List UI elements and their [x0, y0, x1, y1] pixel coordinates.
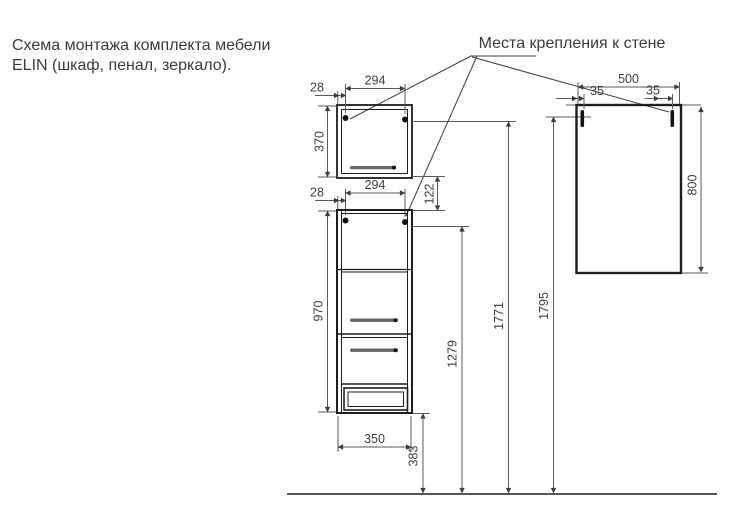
dim-label: 370 [313, 131, 327, 152]
mount-pin-marker [671, 110, 675, 127]
dim-wall-cabinet-edge-offset: 28 [310, 81, 346, 105]
dim-label: 1279 [446, 340, 460, 368]
scheme-title: Схема монтажа комплекта мебели ELIN (шка… [12, 37, 270, 74]
dim-label: 294 [365, 178, 386, 192]
door-handle-end [394, 318, 398, 322]
callout-leader-tall-cabinet [406, 56, 477, 216]
callout-leader-mirror [472, 57, 669, 112]
mount-pin-marker [581, 110, 585, 127]
dim-wall-cabinet-mount-spacing: 294 [346, 74, 406, 115]
dim-tall-cabinet-floor-offset: 383 [407, 414, 431, 494]
dim-between-mount-spacing: 294 [346, 178, 406, 217]
dim-mount-height-tall-cabinet: 1279 [413, 227, 469, 494]
dim-label: 500 [618, 72, 639, 86]
dim-mount-height-mirror: 1795 [537, 117, 591, 493]
tall-cabinet-drawing [337, 210, 412, 413]
drawer-handle-end [394, 348, 398, 352]
mounting-scheme-drawing: Схема монтажа комплекта мебели ELIN (шка… [0, 0, 738, 509]
mount-point-marker [402, 219, 408, 225]
dim-label: 35 [646, 84, 660, 98]
scheme-title-line2: ELIN (шкаф, пенал, зеркало). [12, 57, 231, 74]
dim-label: 350 [364, 432, 385, 446]
dim-label: 122 [423, 184, 437, 205]
dim-label: 383 [407, 446, 421, 467]
mounting-scheme-page: Схема монтажа комплекта мебели ELIN (шка… [0, 0, 738, 509]
mount-point-marker [402, 117, 408, 123]
dim-tall-cabinet-height: 970 [312, 211, 337, 412]
dim-label: 28 [310, 81, 324, 95]
drawer-handle [350, 349, 398, 352]
dim-label: 970 [312, 301, 326, 322]
dim-label: 28 [310, 186, 324, 200]
dim-label: 294 [365, 74, 386, 88]
wall-mount-callout-label: Места крепления к стене [479, 35, 666, 52]
mount-point-marker [343, 115, 349, 121]
dim-label: 1795 [537, 292, 551, 320]
dim-mount-height-wall-cabinet: 1771 [412, 122, 516, 494]
dim-between-edge-offset: 28 [310, 186, 346, 210]
dim-wall-cabinet-height: 370 [313, 106, 337, 177]
dim-label: 1771 [492, 302, 506, 330]
mount-point-marker [343, 218, 349, 224]
wall-cabinet-drawing [337, 105, 412, 178]
door-handle [350, 166, 396, 169]
mirror-drawing [566, 105, 701, 273]
door-handle-end [392, 166, 396, 170]
dim-tall-cabinet-width: 350 [338, 416, 411, 452]
dim-label: 35 [590, 84, 604, 98]
dim-between-vertical-gap: 122 [412, 177, 445, 211]
dim-label: 800 [686, 175, 700, 196]
scheme-title-line1: Схема монтажа комплекта мебели [12, 37, 270, 54]
wall-mount-callout: Места крепления к стене [350, 35, 669, 216]
dim-mirror-height: 800 [682, 107, 708, 273]
door-handle [350, 319, 398, 322]
